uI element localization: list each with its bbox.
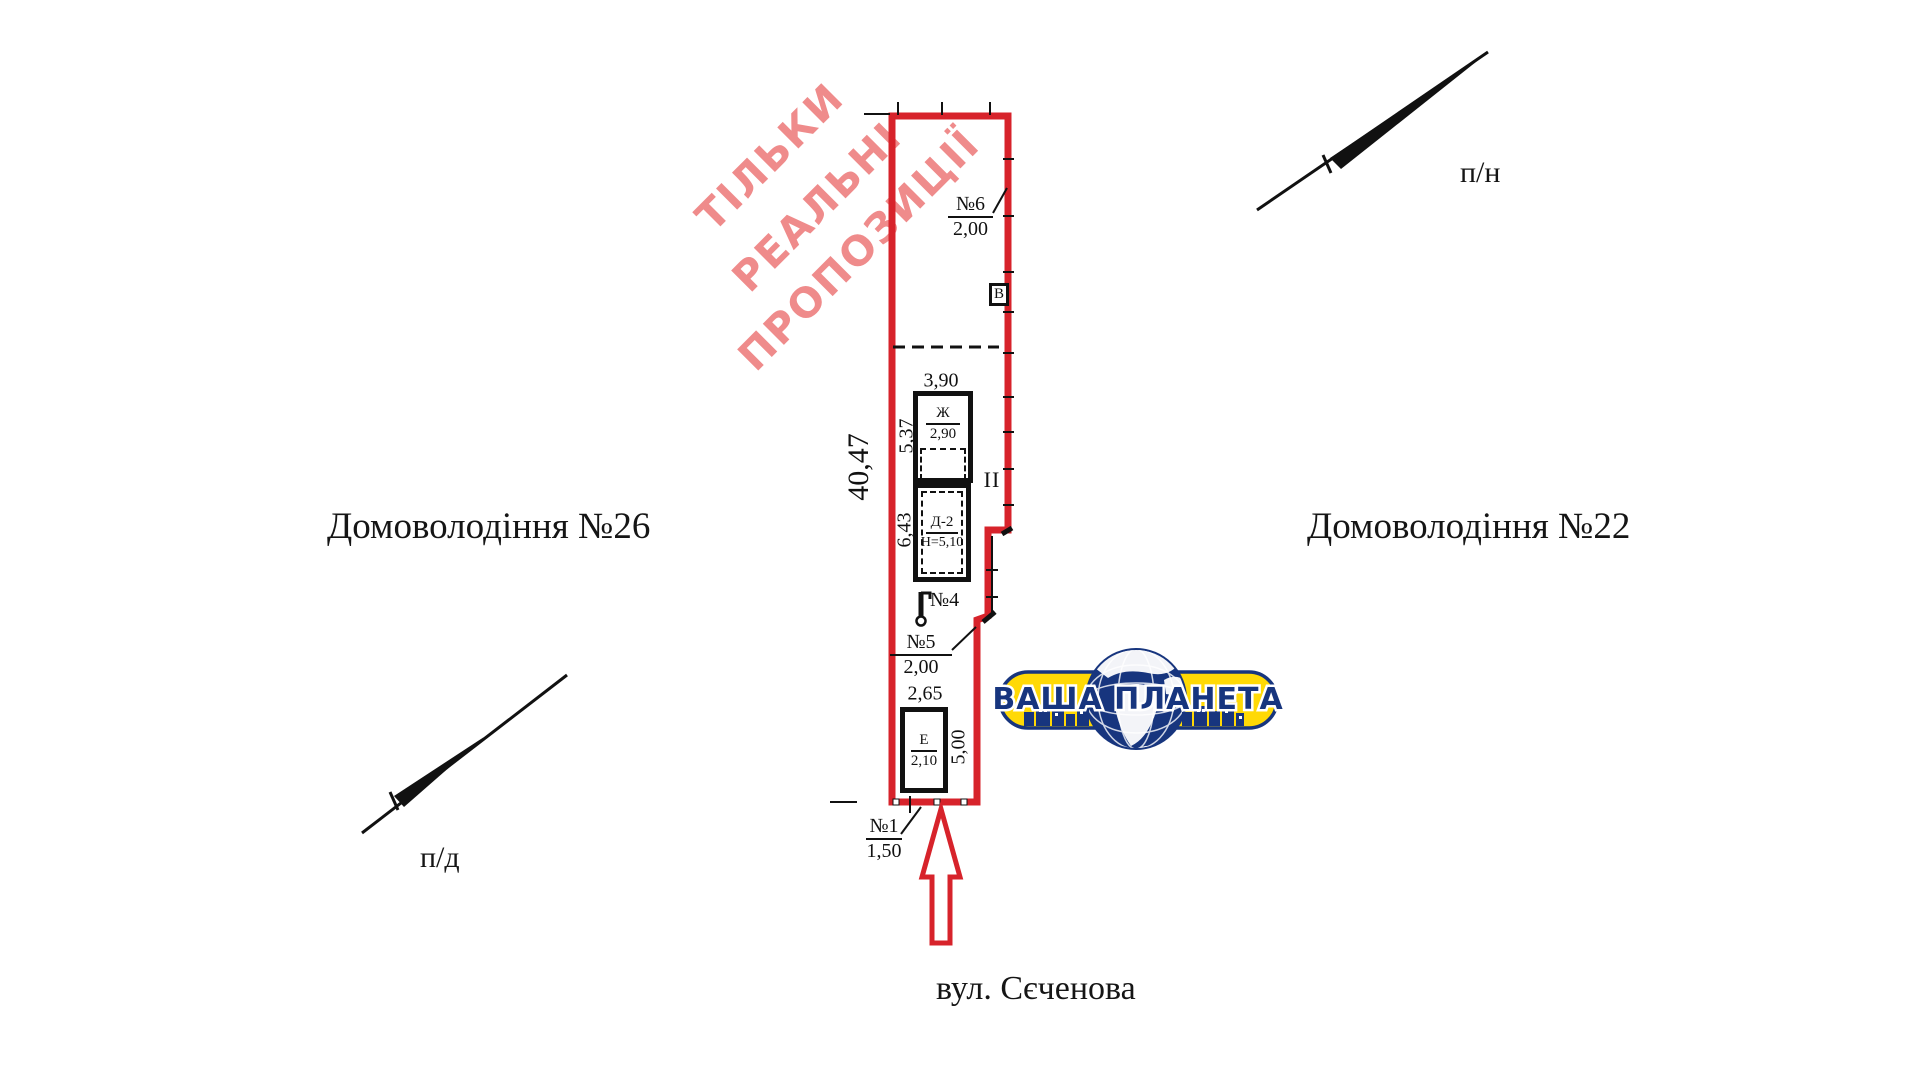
vasha-planeta-logo: ВАША ПЛАНЕТА bbox=[992, 648, 1283, 755]
north-direction-label: п/н bbox=[1460, 156, 1500, 190]
right-property-label: Домоволодіння №22 bbox=[1307, 505, 1630, 548]
standpipe-icon bbox=[917, 592, 931, 626]
section-label: II bbox=[984, 467, 1001, 493]
building-zh-box: Ж 2,90 bbox=[913, 391, 973, 483]
dim-width-bottom: 2,65 bbox=[908, 683, 943, 706]
south-arrow-icon bbox=[362, 675, 567, 833]
dim-overall-length: 40,47 bbox=[842, 433, 876, 501]
dim-segment-lower: 6,43 bbox=[894, 513, 917, 548]
building-d2-label: Д-2 Н=5,10 bbox=[918, 514, 966, 550]
building-zh-label: Ж 2,90 bbox=[918, 405, 968, 442]
building-zh-annex-dashed bbox=[920, 448, 966, 480]
left-property-label: Домоволодіння №26 bbox=[327, 505, 650, 548]
north-arrow-icon bbox=[1257, 52, 1488, 210]
building-v-box: В bbox=[989, 283, 1009, 306]
street-name-label: вул. Сєченова bbox=[936, 970, 1136, 1008]
point-1-label: №1 1,50 bbox=[866, 816, 902, 862]
point-6-label: №6 2,00 bbox=[948, 194, 993, 240]
building-e-box: Е 2,10 bbox=[900, 707, 948, 793]
point-4-label: №4 bbox=[930, 589, 959, 612]
south-direction-label: п/д bbox=[420, 841, 460, 875]
site-plan-page: ТІЛЬКИ РЕАЛЬНІ ПРОПОЗИЦІЇ bbox=[0, 0, 1920, 1080]
point-5-label: №5 2,00 bbox=[890, 632, 952, 678]
logo-text: ВАША ПЛАНЕТА bbox=[992, 682, 1283, 717]
building-e-label: Е 2,10 bbox=[905, 732, 943, 769]
entrance-arrow-icon bbox=[922, 809, 960, 943]
dim-segment-upper: 5,37 bbox=[896, 419, 919, 454]
building-d2-box: Д-2 Н=5,10 bbox=[913, 483, 971, 582]
dim-depth-right: 5,00 bbox=[948, 730, 971, 765]
dim-width-top: 3,90 bbox=[924, 370, 959, 393]
